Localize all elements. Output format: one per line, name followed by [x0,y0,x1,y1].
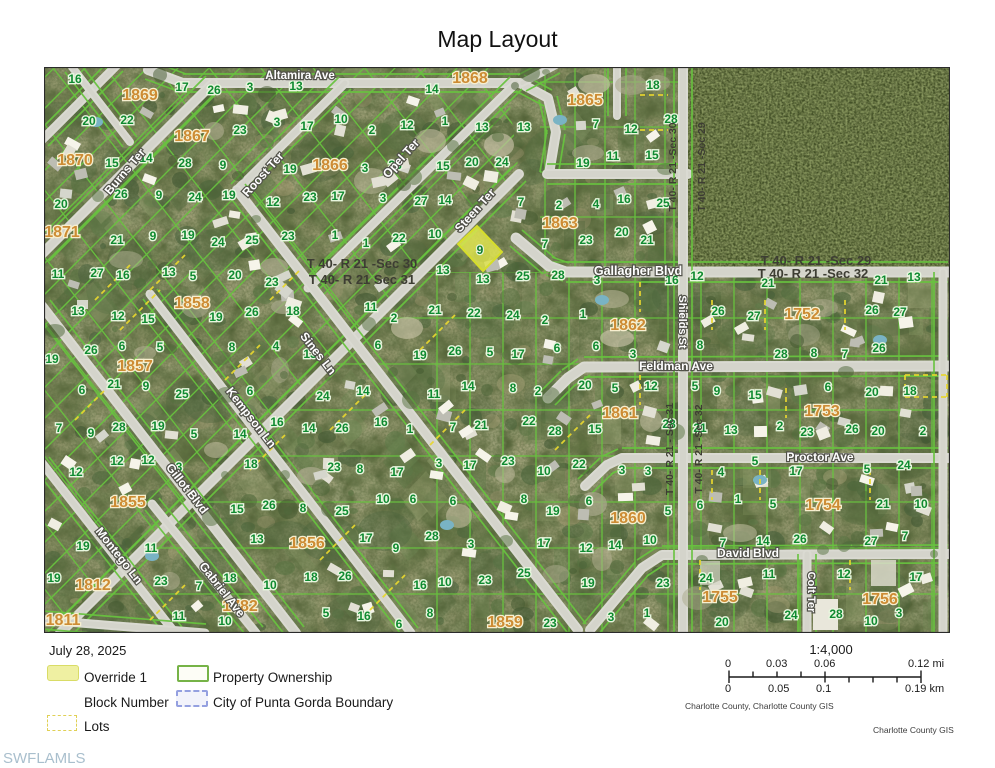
svg-text:5: 5 [487,345,494,359]
svg-text:10: 10 [438,575,452,589]
svg-text:3: 3 [468,537,475,551]
svg-text:23: 23 [800,425,814,439]
svg-text:17: 17 [511,347,525,361]
svg-text:T 40- R 21 Sec 31: T 40- R 21 Sec 31 [309,272,415,287]
svg-text:19: 19 [283,162,297,176]
svg-text:4: 4 [593,197,600,211]
svg-text:21: 21 [474,418,488,432]
svg-text:11: 11 [145,541,158,555]
svg-text:15: 15 [141,312,155,326]
svg-text:5: 5 [770,497,777,511]
svg-text:19: 19 [581,576,595,590]
svg-text:17: 17 [909,570,923,584]
svg-text:13: 13 [476,272,490,286]
svg-text:25: 25 [517,566,531,580]
svg-text:1866: 1866 [312,157,348,174]
svg-text:Altamira Ave: Altamira Ave [265,70,334,82]
svg-text:5: 5 [752,454,759,468]
svg-text:9: 9 [88,426,95,440]
svg-text:22: 22 [392,231,406,245]
svg-text:1753: 1753 [804,403,840,420]
svg-text:14: 14 [438,193,452,207]
svg-text:14: 14 [233,427,247,441]
svg-text:1868: 1868 [452,70,488,87]
svg-text:21: 21 [876,497,890,511]
svg-text:2: 2 [369,123,376,137]
svg-text:8: 8 [510,381,517,395]
svg-text:1870: 1870 [57,152,93,169]
svg-text:26: 26 [335,421,349,435]
svg-text:14: 14 [302,421,316,435]
svg-text:24: 24 [316,389,330,403]
svg-text:25: 25 [175,387,189,401]
svg-text:5: 5 [864,462,871,476]
svg-text:9: 9 [714,384,721,398]
svg-text:10: 10 [218,614,232,628]
svg-text:T 40- R 21 -Sec 29: T 40- R 21 -Sec 29 [696,122,708,211]
svg-text:1857: 1857 [117,358,153,375]
svg-text:23: 23 [233,123,247,137]
svg-text:10: 10 [263,578,277,592]
svg-text:10: 10 [428,227,442,241]
svg-text:26: 26 [245,305,259,319]
svg-text:7: 7 [196,579,203,593]
svg-text:1862: 1862 [610,317,646,334]
svg-text:22: 22 [572,457,586,471]
svg-text:19: 19 [47,571,61,585]
svg-text:T 40- R 21 -Sec 30: T 40- R 21 -Sec 30 [307,256,418,271]
svg-text:7: 7 [842,347,849,361]
svg-text:26: 26 [448,344,462,358]
svg-text:15: 15 [230,502,244,516]
svg-text:24: 24 [897,458,911,472]
svg-text:14: 14 [461,379,475,393]
svg-text:18: 18 [286,304,300,318]
svg-text:11: 11 [763,567,776,581]
svg-text:20: 20 [871,424,885,438]
svg-text:6: 6 [247,384,254,398]
svg-text:19: 19 [45,352,59,366]
svg-text:14: 14 [608,538,622,552]
svg-text:16: 16 [116,268,130,282]
svg-text:13: 13 [71,304,85,318]
svg-text:10: 10 [914,497,928,511]
svg-text:20: 20 [54,197,68,211]
svg-text:24: 24 [188,190,202,204]
svg-text:13: 13 [436,263,450,277]
svg-text:3: 3 [608,610,615,624]
svg-text:26: 26 [338,569,352,583]
svg-text:13: 13 [724,423,738,437]
svg-text:Feldman Ave: Feldman Ave [639,359,713,373]
svg-text:1855: 1855 [110,494,146,511]
svg-text:26: 26 [262,498,276,512]
svg-text:27: 27 [893,305,907,319]
svg-text:28: 28 [548,424,562,438]
svg-text:18: 18 [903,384,917,398]
svg-text:8: 8 [811,346,818,360]
svg-text:28: 28 [551,268,565,282]
svg-text:26: 26 [793,532,807,546]
svg-text:23: 23 [543,616,557,630]
svg-text:22: 22 [467,306,481,320]
svg-text:10: 10 [334,112,348,126]
svg-text:23: 23 [327,460,341,474]
svg-text:10: 10 [376,492,390,506]
svg-text:23: 23 [478,573,492,587]
svg-text:19: 19 [181,228,195,242]
svg-text:26: 26 [865,303,879,317]
svg-text:13: 13 [907,270,921,284]
svg-text:17: 17 [537,536,551,550]
svg-text:5: 5 [665,504,672,518]
svg-text:9: 9 [143,379,150,393]
svg-text:20: 20 [578,378,592,392]
svg-text:6: 6 [375,338,382,352]
svg-text:6: 6 [410,492,417,506]
svg-text:8: 8 [357,462,364,476]
svg-text:T 40- R 21 - Sec 31: T 40- R 21 - Sec 31 [664,403,676,495]
svg-text:2: 2 [535,384,542,398]
svg-text:20: 20 [865,385,879,399]
svg-text:19: 19 [222,188,236,202]
svg-text:22: 22 [120,113,134,127]
svg-text:18: 18 [646,78,660,92]
svg-text:16: 16 [413,578,427,592]
svg-text:1: 1 [363,236,370,250]
svg-text:7: 7 [593,117,600,131]
svg-text:1871: 1871 [44,224,80,241]
svg-text:4: 4 [718,465,725,479]
svg-text:1752: 1752 [784,306,820,323]
svg-text:12: 12 [141,453,155,467]
svg-text:17: 17 [463,458,477,472]
svg-text:17: 17 [331,189,345,203]
svg-text:5: 5 [692,379,699,393]
svg-text:6: 6 [396,617,403,631]
svg-text:12: 12 [266,195,280,209]
svg-text:6: 6 [79,383,86,397]
svg-text:1755: 1755 [702,589,738,606]
svg-text:5: 5 [190,269,197,283]
svg-text:16: 16 [617,192,631,206]
svg-text:17: 17 [359,531,373,545]
svg-text:2: 2 [920,424,927,438]
svg-text:11: 11 [607,149,620,163]
svg-text:3: 3 [436,456,443,470]
svg-text:7: 7 [56,421,63,435]
svg-text:2: 2 [391,311,398,325]
svg-text:2: 2 [777,419,784,433]
svg-text:22: 22 [522,414,536,428]
svg-text:13: 13 [162,265,176,279]
svg-text:17: 17 [789,464,803,478]
svg-text:3: 3 [380,191,387,205]
svg-text:6: 6 [593,339,600,353]
svg-text:20: 20 [228,268,242,282]
svg-text:6: 6 [825,380,832,394]
svg-text:7: 7 [542,237,549,251]
svg-text:20: 20 [615,225,629,239]
svg-text:20: 20 [715,615,729,629]
svg-text:1859: 1859 [487,614,523,631]
svg-text:28: 28 [112,420,126,434]
svg-text:26: 26 [84,343,98,357]
svg-text:12: 12 [837,567,851,581]
svg-text:12: 12 [69,465,83,479]
svg-text:1: 1 [332,228,339,242]
svg-text:1754: 1754 [805,497,841,514]
svg-text:19: 19 [209,310,223,324]
svg-text:2: 2 [556,198,563,212]
svg-text:20: 20 [465,155,479,169]
svg-text:19: 19 [76,539,90,553]
svg-text:17: 17 [390,465,404,479]
svg-text:10: 10 [537,464,551,478]
svg-text:11: 11 [173,609,186,623]
svg-text:9: 9 [220,158,227,172]
svg-text:12: 12 [579,541,593,555]
svg-text:1865: 1865 [567,92,603,109]
svg-text:15: 15 [645,148,659,162]
svg-text:Proctor Ave: Proctor Ave [786,450,853,464]
svg-text:5: 5 [323,606,330,620]
svg-text:7: 7 [518,195,525,209]
svg-text:20: 20 [82,114,96,128]
svg-text:1856: 1856 [289,535,325,552]
svg-text:26: 26 [872,341,886,355]
svg-text:1: 1 [644,606,651,620]
svg-text:18: 18 [244,457,258,471]
svg-text:1: 1 [442,114,449,128]
svg-text:1: 1 [407,422,414,436]
svg-text:23: 23 [501,454,515,468]
svg-text:1811: 1811 [46,612,81,629]
svg-text:9: 9 [156,188,163,202]
svg-text:6: 6 [697,498,704,512]
svg-text:1860: 1860 [610,510,646,527]
svg-text:3: 3 [274,115,281,129]
svg-text:3: 3 [247,80,254,94]
svg-text:21: 21 [107,377,121,391]
svg-text:13: 13 [475,120,489,134]
svg-text:11: 11 [365,300,378,314]
svg-text:24: 24 [699,571,713,585]
svg-text:17: 17 [175,80,189,94]
svg-text:3: 3 [645,464,652,478]
svg-text:27: 27 [414,194,428,208]
svg-text:Gallagher Blvd: Gallagher Blvd [594,264,682,278]
svg-text:15: 15 [436,159,450,173]
svg-text:23: 23 [154,574,168,588]
svg-text:5: 5 [191,427,198,441]
svg-text:7: 7 [450,420,457,434]
svg-text:28: 28 [829,607,843,621]
svg-text:26: 26 [711,304,725,318]
svg-text:23: 23 [265,275,279,289]
svg-text:28: 28 [774,347,788,361]
svg-text:19: 19 [546,504,560,518]
svg-text:26: 26 [845,422,859,436]
svg-text:24: 24 [495,155,509,169]
svg-text:2: 2 [542,313,549,327]
svg-text:T 40- R 21 -Sec 32: T 40- R 21 -Sec 32 [693,404,705,493]
svg-text:19: 19 [576,156,590,170]
svg-text:5: 5 [612,381,619,395]
svg-text:6: 6 [450,494,457,508]
svg-text:3: 3 [896,606,903,620]
svg-text:25: 25 [516,269,530,283]
svg-text:21: 21 [428,303,442,317]
svg-text:6: 6 [119,339,126,353]
svg-text:8: 8 [697,338,704,352]
svg-text:10: 10 [864,614,878,628]
svg-text:8: 8 [521,492,528,506]
svg-text:27: 27 [90,266,104,280]
svg-text:9: 9 [150,229,157,243]
svg-text:14: 14 [425,82,439,96]
svg-text:24: 24 [784,608,798,622]
svg-text:1867: 1867 [174,128,210,145]
svg-text:7: 7 [902,529,909,543]
svg-text:25: 25 [335,504,349,518]
svg-text:1869: 1869 [122,87,158,104]
svg-text:24: 24 [211,235,225,249]
svg-text:16: 16 [374,415,388,429]
svg-text:26: 26 [207,83,221,97]
svg-text:Shields St: Shields St [676,295,688,349]
svg-text:27: 27 [747,309,761,323]
svg-text:8: 8 [229,340,236,354]
svg-text:12: 12 [110,454,124,468]
svg-text:12: 12 [400,118,414,132]
svg-text:9: 9 [393,541,400,555]
svg-text:3: 3 [630,347,637,361]
svg-text:12: 12 [644,379,658,393]
svg-text:8: 8 [300,501,307,515]
svg-text:25: 25 [245,233,259,247]
svg-text:21: 21 [110,233,124,247]
svg-text:13: 13 [250,532,264,546]
svg-text:David Blvd: David Blvd [717,546,779,560]
svg-text:15: 15 [588,422,602,436]
svg-text:16: 16 [68,72,82,86]
svg-text:21: 21 [874,273,888,287]
svg-text:1863: 1863 [542,215,578,232]
svg-text:28: 28 [425,529,439,543]
svg-text:15: 15 [105,156,119,170]
svg-text:1: 1 [735,492,742,506]
svg-text:23: 23 [303,190,317,204]
svg-text:1: 1 [580,307,587,321]
svg-text:12: 12 [624,122,638,136]
svg-text:9: 9 [477,243,484,257]
svg-text:5: 5 [157,340,164,354]
svg-text:6: 6 [554,341,561,355]
svg-text:23: 23 [656,576,670,590]
svg-text:14: 14 [356,384,370,398]
svg-text:28: 28 [178,156,192,170]
svg-text:15: 15 [748,388,762,402]
svg-text:24: 24 [506,308,520,322]
svg-text:3: 3 [619,463,626,477]
svg-text:13: 13 [517,120,531,134]
svg-text:8: 8 [427,606,434,620]
svg-text:17: 17 [300,119,314,133]
svg-text:1858: 1858 [174,295,210,312]
svg-text:21: 21 [640,233,654,247]
svg-text:T 40- R 21 -Sec 32: T 40- R 21 -Sec 32 [758,266,869,281]
svg-text:T 40- R 21 -Sec 30: T 40- R 21 -Sec 30 [667,122,679,211]
svg-text:3: 3 [362,161,369,175]
svg-text:1812: 1812 [75,577,111,594]
svg-text:19: 19 [151,419,165,433]
svg-text:12: 12 [111,309,125,323]
svg-text:27: 27 [864,534,878,548]
svg-text:1861: 1861 [602,405,638,422]
svg-text:6: 6 [586,494,593,508]
svg-text:10: 10 [643,533,657,547]
svg-text:11: 11 [428,387,441,401]
svg-text:19: 19 [413,348,427,362]
svg-text:11: 11 [52,267,65,281]
svg-text:12: 12 [690,269,704,283]
svg-text:23: 23 [281,229,295,243]
svg-text:16: 16 [357,609,371,623]
svg-text:23: 23 [579,233,593,247]
svg-text:18: 18 [304,570,318,584]
svg-text:1756: 1756 [862,591,898,608]
svg-text:4: 4 [273,339,280,353]
svg-text:16: 16 [270,415,284,429]
svg-text:Colt Ter: Colt Ter [805,572,817,613]
